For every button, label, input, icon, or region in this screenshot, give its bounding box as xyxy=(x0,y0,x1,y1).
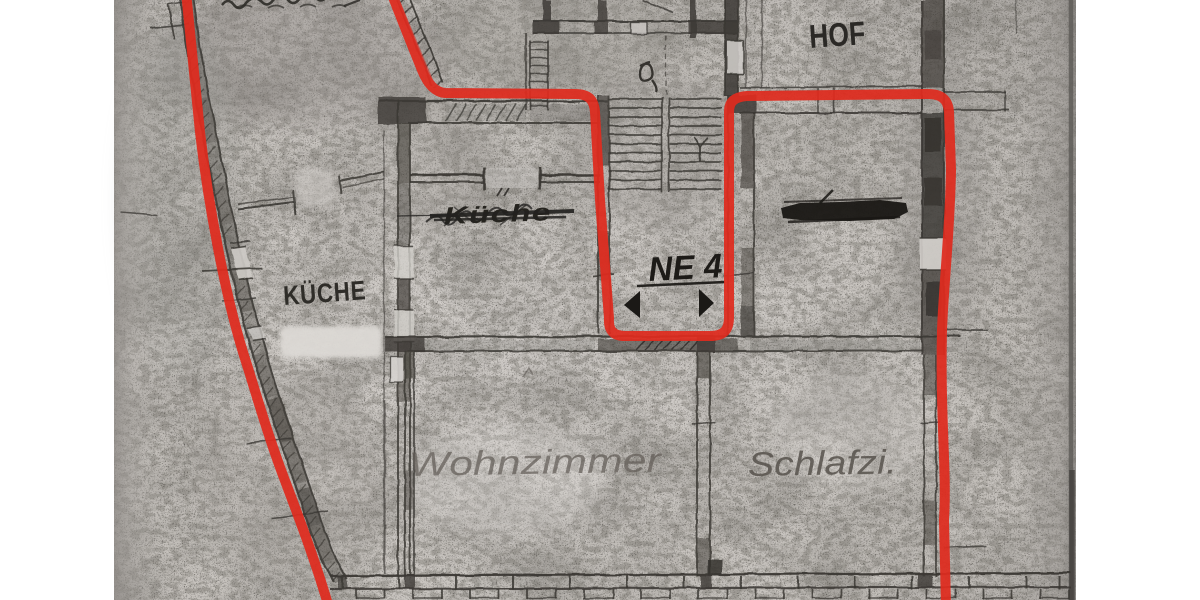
svg-text:KÜCHE: KÜCHE xyxy=(282,275,367,311)
svg-text:Wohnzimmer: Wohnzimmer xyxy=(408,442,663,484)
svg-text:HOF: HOF xyxy=(808,14,866,55)
svg-text:Schlafzi.: Schlafzi. xyxy=(747,443,897,484)
